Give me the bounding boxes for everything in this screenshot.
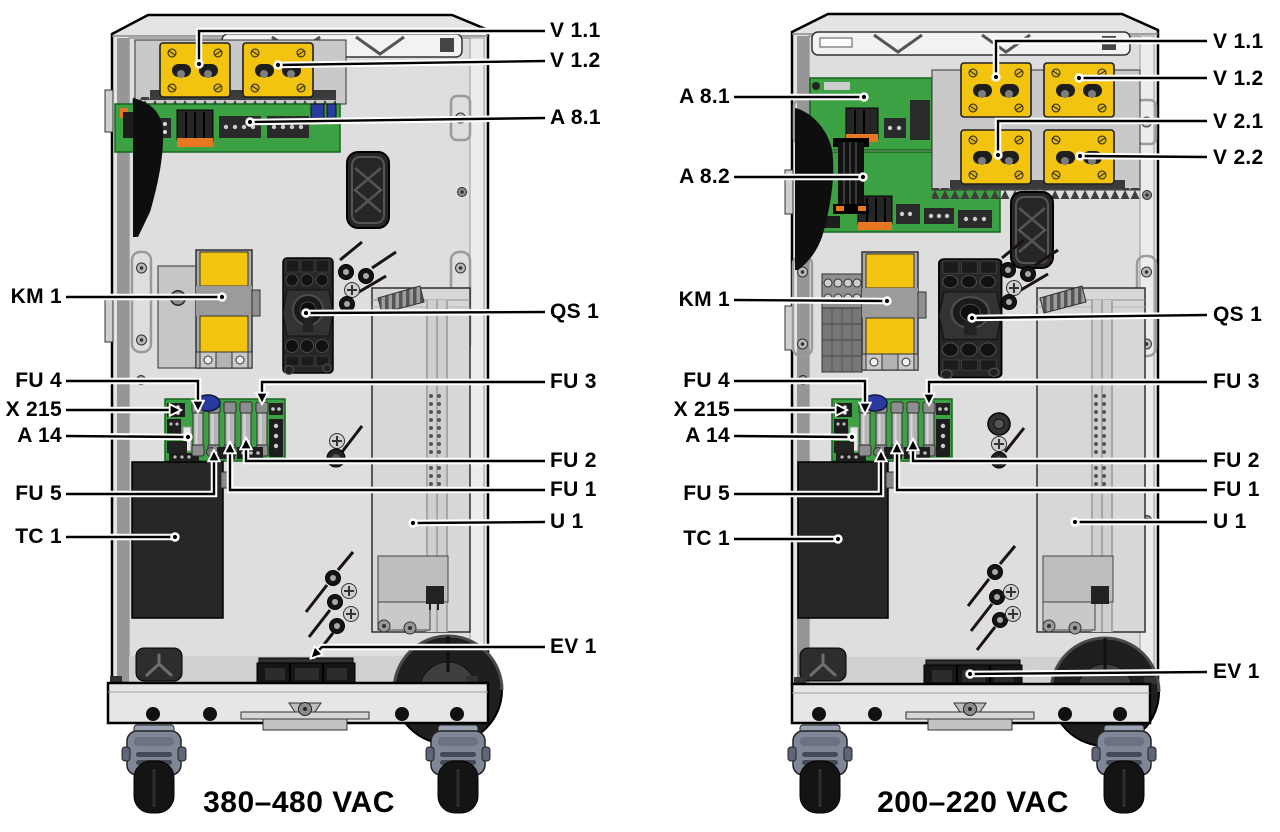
component-ev1-left	[257, 658, 355, 684]
caption-voltage-right: 200–220 VAC	[877, 786, 1069, 820]
callout-x215-right: X 215	[674, 399, 730, 421]
callout-fu2-right: FU 2	[1213, 450, 1260, 472]
callout-a81-right: A 8.1	[679, 86, 730, 108]
leader-km1-right	[734, 300, 887, 301]
component-km1-left	[158, 250, 260, 368]
module-v1-1-left	[160, 43, 230, 97]
callout-fu4-right: FU 4	[683, 370, 730, 392]
diagram-artwork	[0, 0, 1280, 832]
caster-right-2	[1092, 725, 1156, 813]
cabinet-200-220	[785, 14, 1159, 813]
lift-handle-left	[347, 152, 389, 228]
callout-km1-right: KM 1	[679, 289, 730, 311]
callout-v11-right: V 1.1	[1213, 31, 1264, 53]
rectifier-modules-right	[932, 63, 1140, 199]
callout-v22-right: V 2.2	[1213, 147, 1264, 169]
callout-fu1-right: FU 1	[1213, 479, 1260, 501]
caster-left-1	[122, 725, 186, 813]
leader-a14-left	[66, 436, 186, 437]
callout-fu3-left: FU 3	[550, 371, 597, 393]
callout-fu3-right: FU 3	[1213, 371, 1260, 393]
callout-a14-right: A 14	[685, 425, 730, 447]
callout-fu4-left: FU 4	[15, 370, 62, 392]
callout-fu1-left: FU 1	[550, 479, 597, 501]
leader-qs1-left	[306, 312, 545, 313]
callout-a82-right: A 8.2	[679, 166, 730, 188]
fuse-board-left	[165, 395, 285, 461]
caster-right-1	[788, 725, 852, 813]
corner-bracket-left	[136, 648, 182, 681]
cabinet-380-480	[105, 15, 502, 813]
caster-left-2	[426, 725, 490, 813]
callout-ev1-left: EV 1	[550, 636, 597, 658]
callout-fu5-right: FU 5	[683, 483, 730, 505]
base-left	[108, 676, 488, 730]
callout-v12-left: V 1.2	[550, 50, 601, 72]
module-v1-2-left	[243, 43, 313, 97]
leader-v22-right	[1080, 156, 1207, 157]
callout-tc1-left: TC 1	[15, 526, 62, 548]
callout-qs1-right: QS 1	[1213, 304, 1262, 326]
callout-km1-left: KM 1	[11, 286, 62, 308]
caption-voltage-left: 380–480 VAC	[203, 786, 395, 820]
rectifier-modules-left	[135, 40, 346, 108]
callout-u1-left: U 1	[550, 511, 584, 533]
callout-a81-left: A 8.1	[550, 107, 601, 129]
fuse-board-right	[832, 395, 952, 461]
leader-a14-right	[734, 436, 848, 437]
callout-qs1-left: QS 1	[550, 301, 599, 323]
callout-v21-right: V 2.1	[1213, 111, 1264, 133]
figure-canvas: V 1.1 V 1.2 A 8.1 QS 1 FU 3 FU 2 FU 1 U …	[0, 0, 1280, 832]
callout-x215-left: X 215	[6, 399, 62, 421]
callout-fu5-left: FU 5	[15, 483, 62, 505]
callout-ev1-right: EV 1	[1213, 661, 1260, 683]
callout-v12-right: V 1.2	[1213, 68, 1264, 90]
callout-tc1-right: TC 1	[683, 528, 730, 550]
callout-u1-right: U 1	[1213, 511, 1247, 533]
callout-fu2-left: FU 2	[550, 450, 597, 472]
base-right	[792, 677, 1156, 730]
callout-v11-left: V 1.1	[550, 20, 601, 42]
callout-a14-left: A 14	[17, 425, 62, 447]
leader-u1-left	[413, 522, 545, 523]
corner-bracket-right	[800, 648, 846, 681]
module-v1-2-right	[1044, 63, 1114, 117]
